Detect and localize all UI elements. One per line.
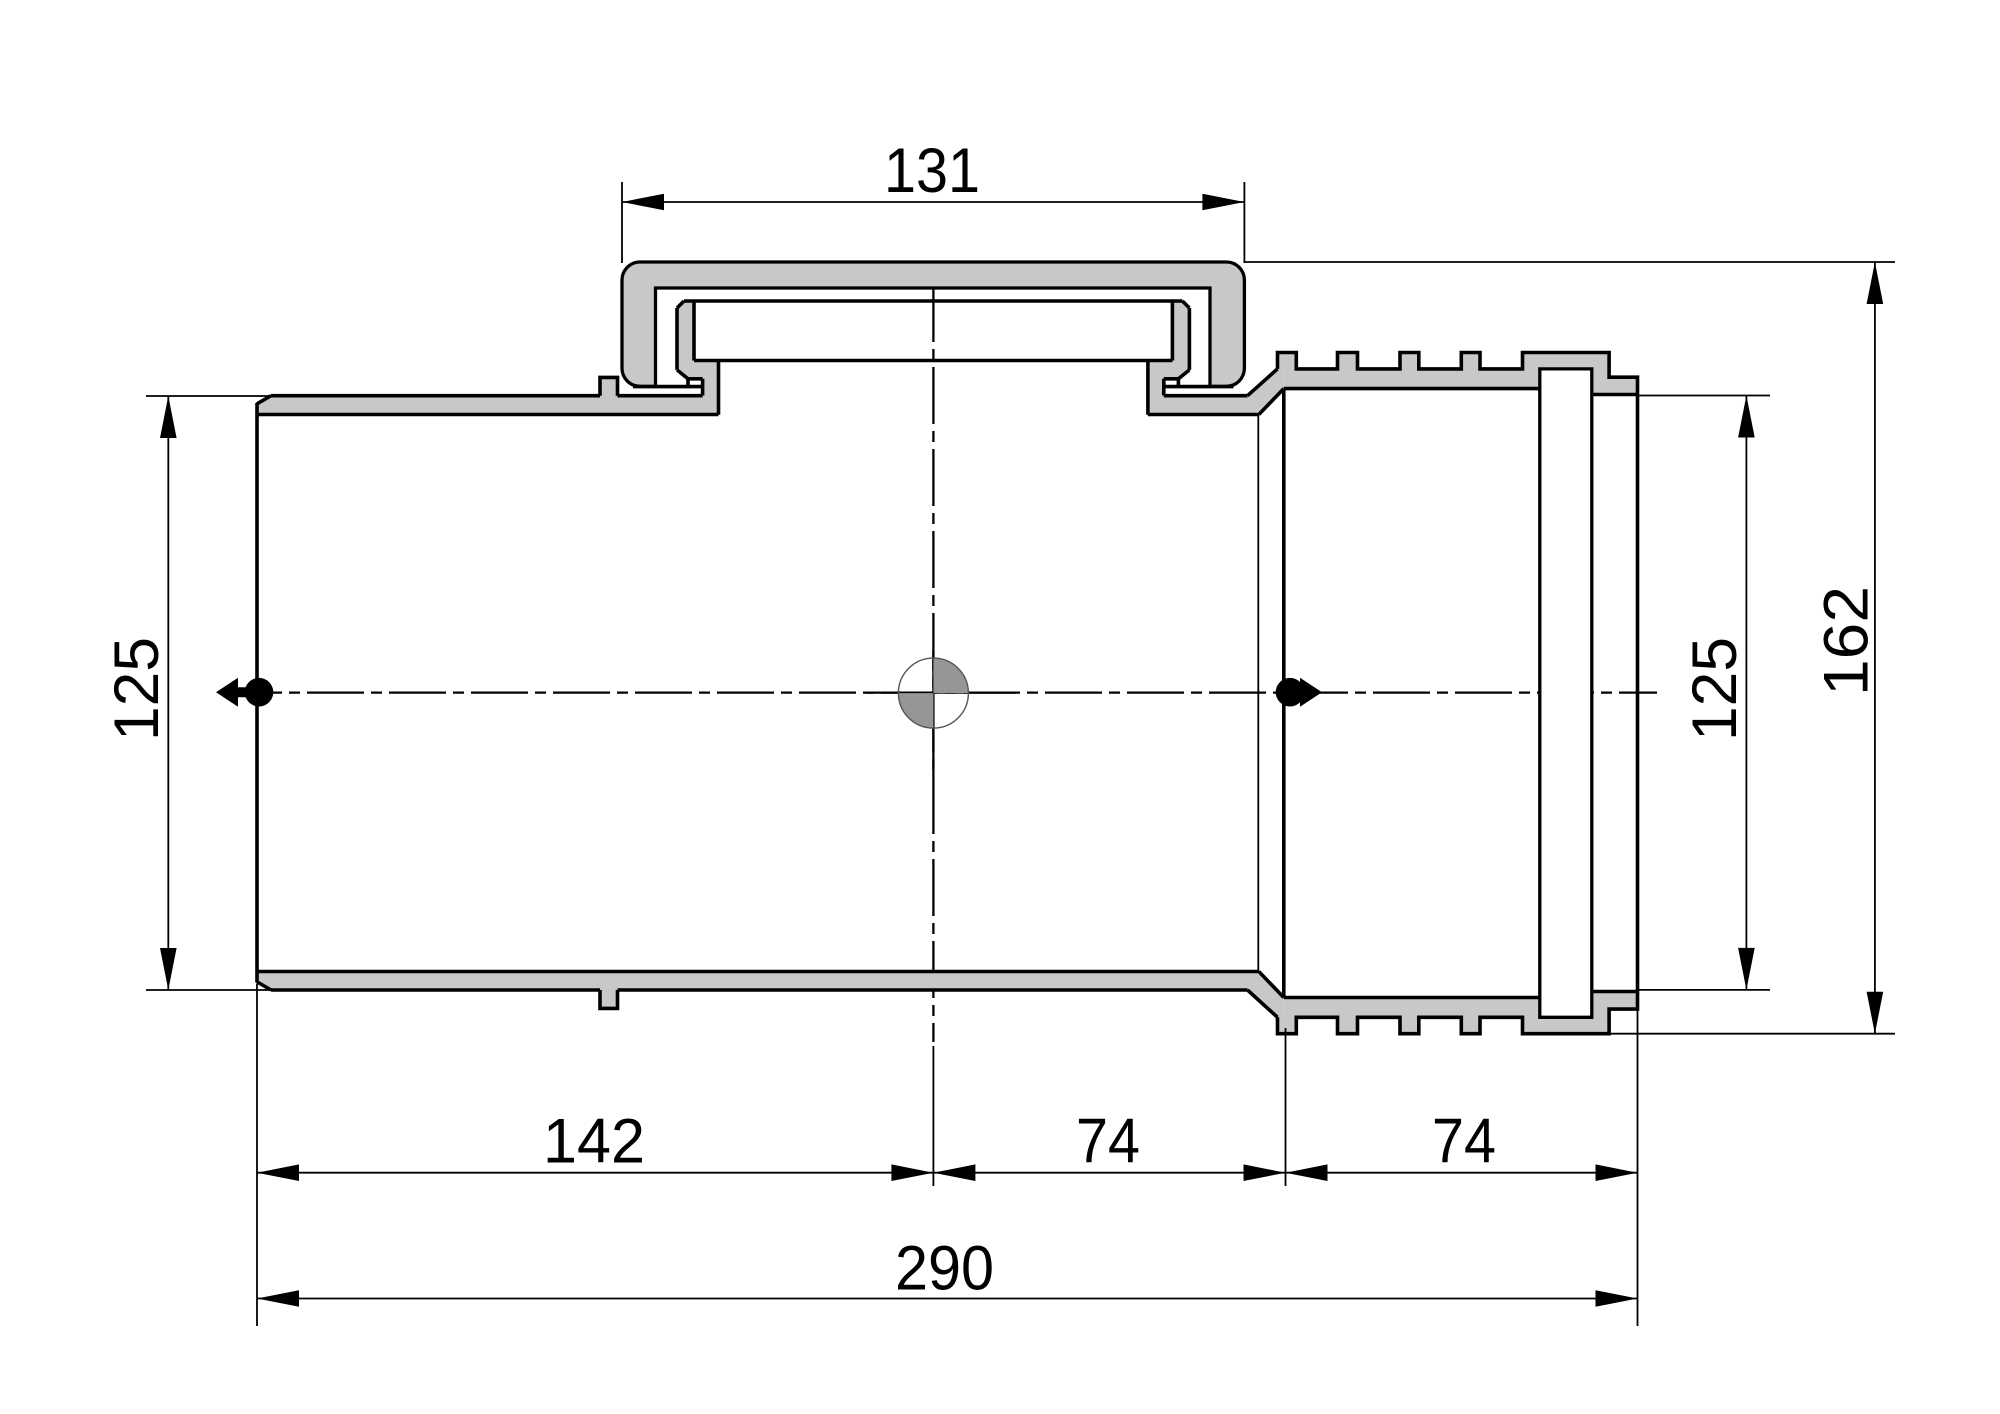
svg-text:162: 162 bbox=[1812, 586, 1882, 696]
svg-text:74: 74 bbox=[1432, 1107, 1496, 1177]
svg-text:290: 290 bbox=[895, 1234, 994, 1304]
svg-text:131: 131 bbox=[884, 136, 980, 206]
svg-text:142: 142 bbox=[543, 1107, 645, 1177]
svg-text:74: 74 bbox=[1076, 1107, 1140, 1177]
svg-text:125: 125 bbox=[102, 637, 172, 741]
svg-text:125: 125 bbox=[1680, 637, 1750, 741]
